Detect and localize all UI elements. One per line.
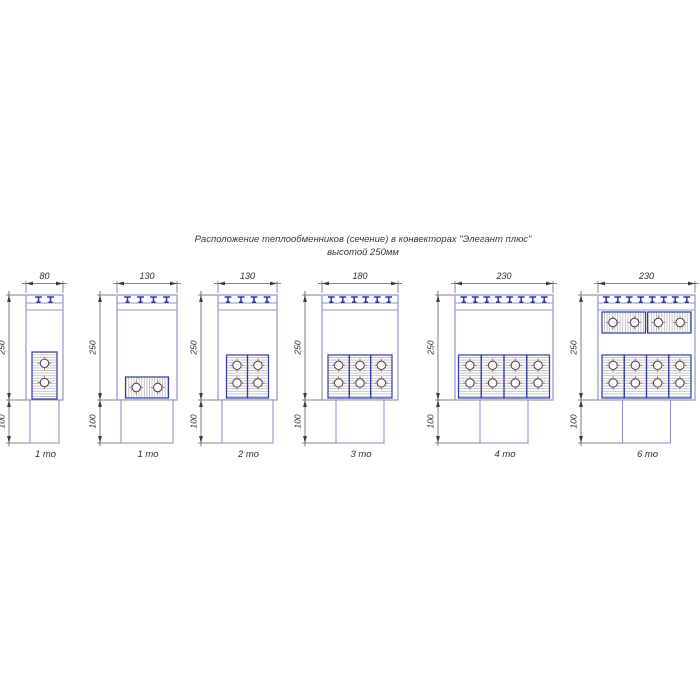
tube-circle (653, 379, 661, 387)
tube-circle (511, 361, 519, 369)
tube-circle (377, 379, 385, 387)
dim-duct-label: 100 (0, 414, 7, 428)
heat-exchanger-block-horizontal (126, 377, 169, 398)
tube-circle (631, 379, 639, 387)
dim-duct-label: 100 (293, 414, 303, 428)
dimension-arrow-icon (98, 393, 102, 400)
dim-width-label: 230 (638, 271, 654, 281)
tube-circle (40, 378, 48, 386)
heat-exchanger-block-vertical (481, 355, 504, 398)
air-duct (480, 400, 528, 443)
width-dimension: 130 (113, 271, 181, 293)
heat-exchanger-block-vertical (371, 355, 392, 398)
dim-width-label: 80 (39, 271, 49, 281)
air-duct (336, 400, 384, 443)
tube-circle (676, 318, 684, 326)
dimension-arrow-icon (98, 436, 102, 443)
heat-exchanger-block-vertical (227, 355, 248, 398)
tube-circle (534, 361, 542, 369)
heat-exchanger-block-vertical (624, 355, 646, 398)
dimension-arrow-icon (436, 400, 440, 407)
dimension-arrow-icon (7, 400, 11, 407)
heat-exchanger-block-vertical (504, 355, 527, 398)
dimension-arrow-icon (56, 282, 63, 286)
tube-circle (356, 379, 364, 387)
heat-exchanger-block-vertical (328, 355, 349, 398)
dimension-arrow-icon (436, 393, 440, 400)
tube-circle (511, 379, 519, 387)
heat-exchanger-block-vertical (647, 355, 669, 398)
dimension-arrow-icon (199, 393, 203, 400)
dim-width-label: 180 (352, 271, 367, 281)
dim-height-label: 250 (0, 340, 7, 355)
air-duct (222, 400, 273, 443)
dimension-arrow-icon (579, 400, 583, 407)
tube-circle (40, 359, 48, 367)
dim-duct-label: 100 (569, 414, 579, 428)
dimension-arrow-icon (455, 282, 462, 286)
tube-circle (609, 379, 617, 387)
dim-height-label: 250 (569, 340, 579, 355)
drawing-canvas: Расположение теплообменников (сечение) в… (0, 0, 700, 700)
heat-exchanger-block-horizontal (602, 312, 646, 333)
dimension-arrow-icon (688, 282, 695, 286)
dim-width-label: 130 (139, 271, 154, 281)
convector-unit-2: 1302501001 то (88, 271, 182, 460)
tube-circle (466, 379, 474, 387)
dim-width-label: 230 (495, 271, 511, 281)
tube-circle (377, 361, 385, 369)
tube-circle (233, 379, 241, 387)
convector-unit-3: 1302501002 то (189, 271, 282, 460)
dimension-arrow-icon (303, 436, 307, 443)
tube-circle (466, 361, 474, 369)
width-dimension: 230 (451, 271, 557, 293)
dimension-arrow-icon (579, 295, 583, 302)
width-dimension: 180 (318, 271, 402, 293)
dimension-arrow-icon (218, 282, 225, 286)
width-dimension: 80 (22, 271, 67, 293)
tube-circle (254, 379, 262, 387)
dim-height-label: 250 (189, 340, 199, 355)
tube-circle (254, 361, 262, 369)
unit-caption: 2 то (237, 449, 259, 460)
width-dimension: 230 (594, 271, 699, 293)
tube-circle (534, 379, 542, 387)
convector-unit-5: 2302501004 то (426, 271, 558, 460)
dim-duct-label: 100 (189, 414, 199, 428)
dimension-arrow-icon (199, 436, 203, 443)
dim-duct-label: 100 (426, 414, 436, 428)
dimension-arrow-icon (98, 400, 102, 407)
convector-unit-4: 1802501003 то (293, 271, 403, 460)
dimension-arrow-icon (98, 295, 102, 302)
dimension-arrow-icon (579, 393, 583, 400)
dimension-arrow-icon (579, 436, 583, 443)
unit-caption: 4 то (494, 449, 515, 460)
tube-circle (154, 383, 162, 391)
dimension-arrow-icon (322, 282, 329, 286)
air-duct (30, 400, 59, 443)
dim-height-label: 250 (293, 340, 303, 355)
heat-exchanger-block-vertical (248, 355, 269, 398)
dimension-arrow-icon (303, 295, 307, 302)
dimension-arrow-icon (436, 295, 440, 302)
dimension-arrow-icon (391, 282, 398, 286)
dim-height-label: 250 (426, 340, 436, 355)
dimension-arrow-icon (303, 400, 307, 407)
dimension-arrow-icon (170, 282, 177, 286)
tube-circle (653, 361, 661, 369)
dim-height-label: 250 (88, 340, 98, 355)
height-dimension: 250100 (88, 291, 122, 446)
tube-circle (488, 361, 496, 369)
heat-exchanger-block-vertical (602, 355, 624, 398)
dimension-arrow-icon (199, 295, 203, 302)
dimension-arrow-icon (598, 282, 605, 286)
tube-circle (676, 379, 684, 387)
dim-width-label: 130 (240, 271, 255, 281)
tube-circle (233, 361, 241, 369)
dimension-arrow-icon (7, 295, 11, 302)
height-dimension: 250100 (189, 291, 223, 446)
dim-duct-label: 100 (88, 414, 98, 428)
tube-circle (356, 361, 364, 369)
tube-circle (488, 379, 496, 387)
dimension-arrow-icon (117, 282, 124, 286)
dimension-arrow-icon (7, 393, 11, 400)
heat-exchanger-block-vertical (669, 355, 691, 398)
tube-circle (609, 318, 617, 326)
unit-caption: 6 то (637, 449, 658, 460)
air-duct (121, 400, 173, 443)
heat-exchanger-block-vertical (32, 352, 57, 399)
convector-unit-1: 802501001 то (0, 271, 67, 460)
tube-circle (334, 361, 342, 369)
convector-unit-6: 2302501006 то (569, 271, 700, 460)
dimension-arrow-icon (270, 282, 277, 286)
dimension-arrow-icon (303, 393, 307, 400)
unit-caption: 1 то (35, 449, 56, 460)
dimension-arrow-icon (436, 436, 440, 443)
heat-exchanger-block-horizontal (648, 312, 692, 333)
tube-circle (631, 361, 639, 369)
heat-exchanger-block-vertical (349, 355, 370, 398)
tube-circle (609, 361, 617, 369)
tube-circle (132, 383, 140, 391)
tube-circle (676, 361, 684, 369)
dimension-arrow-icon (199, 400, 203, 407)
air-duct (623, 400, 671, 443)
tube-circle (630, 318, 638, 326)
unit-caption: 3 то (350, 449, 371, 460)
tube-circle (654, 318, 662, 326)
dimension-arrow-icon (546, 282, 553, 286)
unit-caption: 1 то (137, 449, 158, 460)
dimension-arrow-icon (26, 282, 33, 286)
heat-exchanger-block-vertical (527, 355, 550, 398)
width-dimension: 130 (214, 271, 281, 293)
tube-circle (334, 379, 342, 387)
convector-sections-diagram: 802501001 то1302501001 то1302501002 то18… (0, 0, 700, 700)
dimension-arrow-icon (7, 436, 11, 443)
heat-exchanger-block-vertical (459, 355, 482, 398)
